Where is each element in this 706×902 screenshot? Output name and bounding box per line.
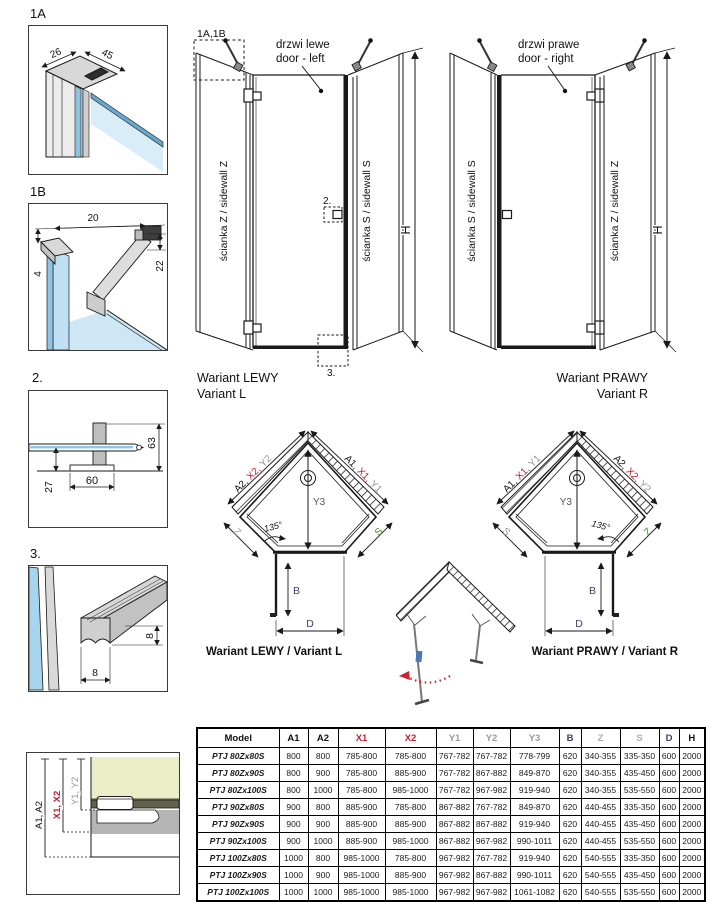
svg-text:H: H xyxy=(651,225,665,234)
svg-text:135°: 135° xyxy=(590,518,611,533)
sidewall-z-panel xyxy=(595,53,655,350)
value-cell: 985-1000 xyxy=(385,884,436,902)
value-cell: 600 xyxy=(659,833,679,850)
value-cell: 778-799 xyxy=(510,748,559,765)
value-cell: 867-882 xyxy=(436,833,473,850)
svg-text:door - right: door - right xyxy=(518,53,574,65)
value-cell: 1061-1082 xyxy=(510,884,559,902)
table-row: PTJ 80Zx100S8001000785-800985-1000767-78… xyxy=(197,782,705,799)
svg-text:1A,1B: 1A,1B xyxy=(197,28,226,40)
value-cell: 967-982 xyxy=(473,884,510,902)
value-cell: 2000 xyxy=(679,748,705,765)
value-cell: 900 xyxy=(279,816,308,833)
svg-text:B: B xyxy=(293,585,300,597)
col-header-a2: A2 xyxy=(308,728,338,748)
value-cell: 767-782 xyxy=(473,850,510,867)
dimensions-table: ModelA1A2X1X2Y1Y2Y3BZSDH PTJ 80Zx80S8008… xyxy=(196,727,706,902)
plan-left: Y3 135° A2,X2,Y2 A1,X1,Y1 Z S B D xyxy=(207,430,407,642)
value-cell: 600 xyxy=(659,748,679,765)
door-handle xyxy=(270,613,276,617)
col-header-y1: Y1 xyxy=(436,728,473,748)
door-handle xyxy=(503,211,512,219)
door-panel xyxy=(497,75,596,349)
handle-section xyxy=(29,423,163,471)
svg-text:door - left: door - left xyxy=(276,53,325,65)
value-cell: 990-1011 xyxy=(510,867,559,884)
dim-y3: Y3 xyxy=(308,450,326,549)
col-header-a1: A1 xyxy=(279,728,308,748)
sidewall-s-panel xyxy=(348,53,403,350)
elevation-left-caption: Wariant LEWYVariant L xyxy=(197,370,279,402)
value-cell: 919-940 xyxy=(510,850,559,867)
detail-2-box: 63 27 60 xyxy=(28,390,168,528)
svg-text:27: 27 xyxy=(43,481,55,493)
value-cell: 340-355 xyxy=(581,765,620,782)
value-cell: 600 xyxy=(659,884,679,902)
dim-4: 4 xyxy=(33,229,44,277)
value-cell: 1000 xyxy=(308,833,338,850)
value-cell: 990-1011 xyxy=(510,833,559,850)
threshold-bar xyxy=(253,346,348,350)
model-cell: PTJ 90Zx80S xyxy=(197,799,279,816)
svg-text:H: H xyxy=(399,225,413,234)
swing-arc xyxy=(399,671,450,683)
value-cell: 849-870 xyxy=(510,765,559,782)
model-cell: PTJ 90Zx90S xyxy=(197,816,279,833)
value-cell: 335-350 xyxy=(620,799,659,816)
dim-edge-right: A2,X2,Y2 xyxy=(580,431,657,504)
value-cell: 800 xyxy=(308,799,338,816)
value-cell: 867-882 xyxy=(436,816,473,833)
value-cell: 985-1000 xyxy=(385,782,436,799)
value-cell: 885-900 xyxy=(338,799,385,816)
value-cell: 1000 xyxy=(308,782,338,799)
model-cell: PTJ 80Zx90S xyxy=(197,765,279,782)
sidewall-s-label: ścianka S / sidewall S xyxy=(466,160,478,262)
value-cell: 440-455 xyxy=(581,816,620,833)
value-cell: 867-882 xyxy=(436,799,473,816)
dim-z: Z xyxy=(224,523,258,557)
value-cell: 785-800 xyxy=(385,850,436,867)
model-cell: PTJ 90Zx100S xyxy=(197,833,279,850)
value-cell: 867-882 xyxy=(473,765,510,782)
value-cell: 785-800 xyxy=(385,748,436,765)
value-cell: 340-355 xyxy=(581,748,620,765)
dim-d: D xyxy=(276,556,344,636)
value-cell: 985-1000 xyxy=(338,850,385,867)
value-cell: 1000 xyxy=(279,850,308,867)
dim-b: B xyxy=(589,563,601,616)
value-cell: 620 xyxy=(559,799,581,816)
elevation-right: drzwi prawe door - right ścianka S / sid… xyxy=(448,25,698,377)
sidewall-z-label: ścianka Z / sidewall Z xyxy=(609,160,621,261)
col-header-x2: X2 xyxy=(385,728,436,748)
support-rod-left xyxy=(223,38,243,71)
detail-3-drawing: 8 8 xyxy=(29,566,167,691)
hinge-bottom xyxy=(244,321,261,334)
value-cell: 340-355 xyxy=(581,782,620,799)
dim-s: S xyxy=(358,523,392,557)
value-cell: 785-800 xyxy=(338,765,385,782)
model-cell: PTJ 100Zx90S xyxy=(197,867,279,884)
col-header-model: Model xyxy=(197,728,279,748)
table-row: PTJ 90Zx90S900900885-900885-900867-88286… xyxy=(197,816,705,833)
detail-2-drawing: 63 27 60 xyxy=(29,391,167,527)
value-cell: 535-550 xyxy=(620,833,659,850)
value-cell: 540-555 xyxy=(581,867,620,884)
value-cell: 919-940 xyxy=(510,816,559,833)
model-cell: PTJ 80Zx80S xyxy=(197,748,279,765)
value-cell: 867-882 xyxy=(473,816,510,833)
value-cell: 620 xyxy=(559,748,581,765)
glass-edge xyxy=(29,567,59,690)
value-cell: 985-1000 xyxy=(338,867,385,884)
detail-1a-drawing: 26 45 xyxy=(29,26,167,174)
glass-pane xyxy=(91,93,163,172)
svg-text:135°: 135° xyxy=(263,519,284,534)
value-cell: 620 xyxy=(559,816,581,833)
wall-section xyxy=(91,757,179,857)
table-row: PTJ 90Zx80S900800885-900785-800867-88276… xyxy=(197,799,705,816)
glass-panes xyxy=(47,246,167,350)
detail-1a-label: 1A xyxy=(30,6,46,21)
value-cell: 800 xyxy=(279,765,308,782)
open-door-left xyxy=(406,613,429,704)
value-cell: 2000 xyxy=(679,867,705,884)
hinge-top xyxy=(244,89,261,102)
svg-text:Y1, Y2: Y1, Y2 xyxy=(70,777,81,805)
value-cell: 2000 xyxy=(679,782,705,799)
value-cell: 1000 xyxy=(279,867,308,884)
sidewall-s-label: ścianka S / sidewall S xyxy=(361,160,373,262)
value-cell: 600 xyxy=(659,867,679,884)
value-cell: 800 xyxy=(279,782,308,799)
value-cell: 867-882 xyxy=(473,867,510,884)
value-cell: 967-982 xyxy=(436,850,473,867)
value-cell: 435-450 xyxy=(620,816,659,833)
value-cell: 800 xyxy=(308,748,338,765)
dim-y3: Y3 xyxy=(560,450,577,549)
value-cell: 2000 xyxy=(679,850,705,867)
marker-2: 2. xyxy=(323,196,342,222)
value-cell: 535-550 xyxy=(620,782,659,799)
svg-text:Y3: Y3 xyxy=(313,497,326,508)
value-cell: 335-350 xyxy=(620,850,659,867)
col-header-d: D xyxy=(659,728,679,748)
door-swing-edge xyxy=(613,554,619,617)
value-cell: 767-782 xyxy=(473,748,510,765)
fixed-post xyxy=(344,75,349,348)
dim-27: 27 xyxy=(43,448,56,493)
wall-detail-drawing: A1, A2 X1, X2 Y1, Y2 xyxy=(27,753,179,894)
dim-edge-left: A1,X1,Y1 xyxy=(497,431,574,504)
fixed-post xyxy=(497,75,502,348)
value-cell: 900 xyxy=(308,816,338,833)
model-cell: PTJ 100Zx80S xyxy=(197,850,279,867)
table-row: PTJ 100Zx90S1000900985-1000885-900967-98… xyxy=(197,867,705,884)
value-cell: 2000 xyxy=(679,799,705,816)
dim-8-width: 8 xyxy=(81,647,110,684)
open-door-right xyxy=(470,614,490,663)
value-cell: 600 xyxy=(659,799,679,816)
value-cell: 600 xyxy=(659,816,679,833)
svg-text:S: S xyxy=(500,526,513,539)
door-callout: drzwi lewe door - left xyxy=(276,39,330,93)
dim-z: Z xyxy=(627,523,661,557)
door-callout: drzwi prawe door - right xyxy=(518,39,579,93)
value-cell: 985-1000 xyxy=(385,833,436,850)
value-cell: 800 xyxy=(279,748,308,765)
value-cell: 620 xyxy=(559,833,581,850)
hinge-bottom xyxy=(587,321,604,334)
detail-2-label: 2. xyxy=(32,370,43,385)
sidewall-z-label: ścianka Z / sidewall Z xyxy=(218,160,230,261)
value-cell: 885-900 xyxy=(385,765,436,782)
col-header-y2: Y2 xyxy=(473,728,510,748)
plan-left-caption: Wariant LEWY / Variant L xyxy=(206,646,342,658)
dim-edge-left: A2,X2,Y2 xyxy=(228,431,305,504)
handle-icon xyxy=(415,651,422,662)
value-cell: 535-550 xyxy=(620,884,659,902)
model-cell: PTJ 100Zx100S xyxy=(197,884,279,902)
value-cell: 620 xyxy=(559,850,581,867)
svg-text:B: B xyxy=(589,585,596,597)
value-cell: 885-900 xyxy=(338,833,385,850)
svg-text:3.: 3. xyxy=(327,368,335,377)
support-rod-left xyxy=(477,38,497,71)
value-cell: 985-1000 xyxy=(338,884,385,902)
value-cell: 900 xyxy=(279,799,308,816)
svg-text:4: 4 xyxy=(33,271,44,277)
value-cell: 2000 xyxy=(679,816,705,833)
value-cell: 2000 xyxy=(679,833,705,850)
col-header-h: H xyxy=(679,728,705,748)
value-cell: 2000 xyxy=(679,765,705,782)
value-cell: 800 xyxy=(308,850,338,867)
value-cell: 767-782 xyxy=(436,748,473,765)
table-head-row: ModelA1A2X1X2Y1Y2Y3BZSDH xyxy=(197,728,705,748)
value-cell: 600 xyxy=(659,850,679,867)
value-cell: 540-555 xyxy=(581,850,620,867)
value-cell: 967-982 xyxy=(473,782,510,799)
value-cell: 435-450 xyxy=(620,765,659,782)
value-cell: 600 xyxy=(659,782,679,799)
table-row: PTJ 80Zx80S800800785-800785-800767-78276… xyxy=(197,748,705,765)
col-header-z: Z xyxy=(581,728,620,748)
value-cell: 335-350 xyxy=(620,748,659,765)
door-swing-edge xyxy=(270,554,276,617)
svg-text:63: 63 xyxy=(146,437,158,449)
value-cell: 620 xyxy=(559,867,581,884)
value-cell: 600 xyxy=(659,765,679,782)
value-cell: 967-982 xyxy=(436,884,473,902)
col-header-s: S xyxy=(620,728,659,748)
value-cell: 1000 xyxy=(308,884,338,902)
col-header-x1: X1 xyxy=(338,728,385,748)
svg-text:2.: 2. xyxy=(323,196,331,207)
value-cell: 785-800 xyxy=(385,799,436,816)
angle-135: 135° xyxy=(590,518,619,542)
value-cell: 620 xyxy=(559,782,581,799)
model-cell: PTJ 80Zx100S xyxy=(197,782,279,799)
value-cell: 620 xyxy=(559,765,581,782)
angle-135: 135° xyxy=(263,519,286,542)
value-cell: 885-900 xyxy=(338,816,385,833)
corner-walls xyxy=(396,562,515,632)
svg-text:drzwi prawe: drzwi prawe xyxy=(518,39,579,51)
threshold-bar xyxy=(501,346,596,350)
dim-edge-right: A1,X1,Y1 xyxy=(311,431,388,504)
table-body: PTJ 80Zx80S800800785-800785-800767-78276… xyxy=(197,748,705,902)
hinge-top xyxy=(587,89,604,102)
svg-text:8: 8 xyxy=(92,667,98,679)
svg-text:D: D xyxy=(575,618,583,630)
svg-text:Z: Z xyxy=(642,526,654,538)
dim-60: 60 xyxy=(70,473,114,491)
value-cell: 967-982 xyxy=(473,833,510,850)
value-cell: 967-982 xyxy=(436,867,473,884)
dim-b: B xyxy=(288,563,300,616)
value-cell: 785-800 xyxy=(338,748,385,765)
value-cell: 767-782 xyxy=(473,799,510,816)
detail-1a-box: 26 45 xyxy=(28,25,168,175)
elevation-right-caption: Wariant PRAWYVariant R xyxy=(448,370,648,402)
ref-1a-1b: 1A,1B xyxy=(194,28,244,80)
detail-3-label: 3. xyxy=(30,546,41,561)
support-rod-right xyxy=(626,38,647,71)
door-handle xyxy=(333,211,342,219)
value-cell: 785-800 xyxy=(338,782,385,799)
value-cell: 435-450 xyxy=(620,867,659,884)
table-row: PTJ 100Zx100S10001000985-1000985-1000967… xyxy=(197,884,705,902)
value-cell: 849-870 xyxy=(510,799,559,816)
svg-text:drzwi lewe: drzwi lewe xyxy=(276,39,330,51)
col-header-y3: Y3 xyxy=(510,728,559,748)
value-cell: 620 xyxy=(559,884,581,902)
svg-text:22: 22 xyxy=(155,260,166,272)
col-header-b: B xyxy=(559,728,581,748)
value-cell: 900 xyxy=(308,867,338,884)
threshold-strip xyxy=(81,576,167,643)
value-cell: 885-900 xyxy=(385,816,436,833)
svg-text:A1, A2: A1, A2 xyxy=(34,801,45,829)
value-cell: 767-782 xyxy=(436,765,473,782)
svg-text:S: S xyxy=(373,526,386,539)
detail-1b-label: 1B xyxy=(30,184,46,199)
svg-text:Y3: Y3 xyxy=(560,497,573,508)
dim-s: S xyxy=(493,523,527,557)
door-handle xyxy=(613,613,619,617)
elevation-left: 1A,1B drzwi lewe door - left ścianka Z /… xyxy=(190,25,425,377)
detail-1b-drawing: 20 4 22 xyxy=(29,204,167,350)
value-cell: 2000 xyxy=(679,884,705,902)
value-cell: 440-455 xyxy=(581,799,620,816)
corner-swing-diagram xyxy=(396,556,516,716)
value-cell: 767-782 xyxy=(436,782,473,799)
svg-text:8: 8 xyxy=(144,633,156,639)
value-cell: 540-555 xyxy=(581,884,620,902)
dim-d: D xyxy=(545,556,613,636)
svg-text:Z: Z xyxy=(231,526,243,538)
table-row: PTJ 90Zx100S9001000885-900985-1000867-88… xyxy=(197,833,705,850)
svg-text:60: 60 xyxy=(86,475,98,487)
svg-text:20: 20 xyxy=(87,213,99,224)
value-cell: 900 xyxy=(279,833,308,850)
table-row: PTJ 80Zx90S800900785-800885-900767-78286… xyxy=(197,765,705,782)
svg-text:X1, X2: X1, X2 xyxy=(52,791,63,820)
detail-1b-box: 20 4 22 xyxy=(28,203,168,351)
wall-detail-box: A1, A2 X1, X2 Y1, Y2 xyxy=(26,752,180,895)
value-cell: 440-455 xyxy=(581,833,620,850)
detail-3-box: 8 8 xyxy=(28,565,168,692)
table-row: PTJ 100Zx80S1000800985-1000785-800967-98… xyxy=(197,850,705,867)
value-cell: 900 xyxy=(308,765,338,782)
value-cell: 885-900 xyxy=(385,867,436,884)
value-cell: 919-940 xyxy=(510,782,559,799)
value-cell: 1000 xyxy=(279,884,308,902)
svg-text:D: D xyxy=(306,618,314,630)
